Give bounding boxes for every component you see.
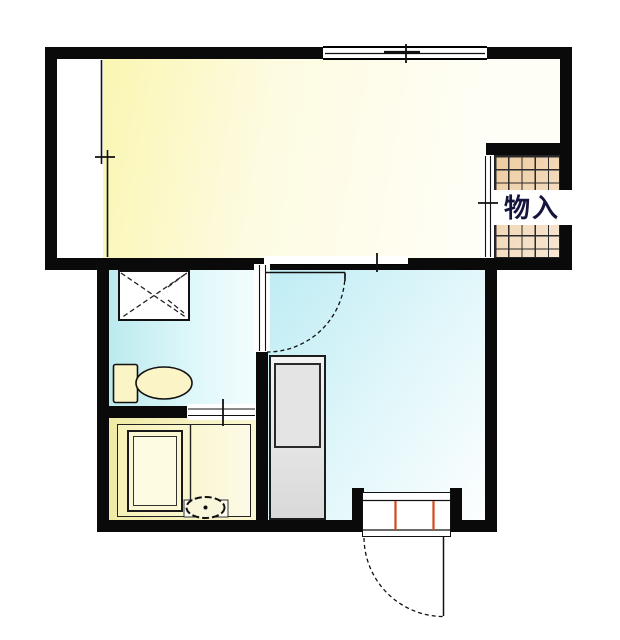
closet-label: 物入: [492, 190, 572, 225]
sliding-door-bathroom: [187, 404, 256, 420]
floor-plan: 物入: [0, 0, 620, 640]
wall-left-upper: [45, 47, 57, 270]
wall-top: [45, 47, 572, 59]
window-top: [323, 46, 487, 60]
closet-label-text: 物入: [504, 195, 560, 221]
wall-left-lower: [97, 258, 109, 532]
wall-right-upper: [560, 47, 572, 270]
entrance-pillar-right: [450, 488, 462, 532]
washing-machine-pan-icon: [118, 270, 190, 321]
wall-closet-top: [486, 143, 572, 155]
entrance-door-icon: [364, 537, 444, 617]
sliding-door-washroom: [254, 264, 270, 352]
wall-right-lower: [485, 264, 497, 532]
entrance-door-step: [362, 492, 451, 537]
wall-bathroom: [109, 406, 190, 418]
kitchen-unit-inner: [274, 363, 321, 448]
bathtub-inner: [133, 436, 177, 506]
doorway-main-to-kitchen: [264, 256, 408, 265]
closet-strip-floor: [57, 59, 103, 258]
wall-bottom-left: [97, 520, 364, 532]
